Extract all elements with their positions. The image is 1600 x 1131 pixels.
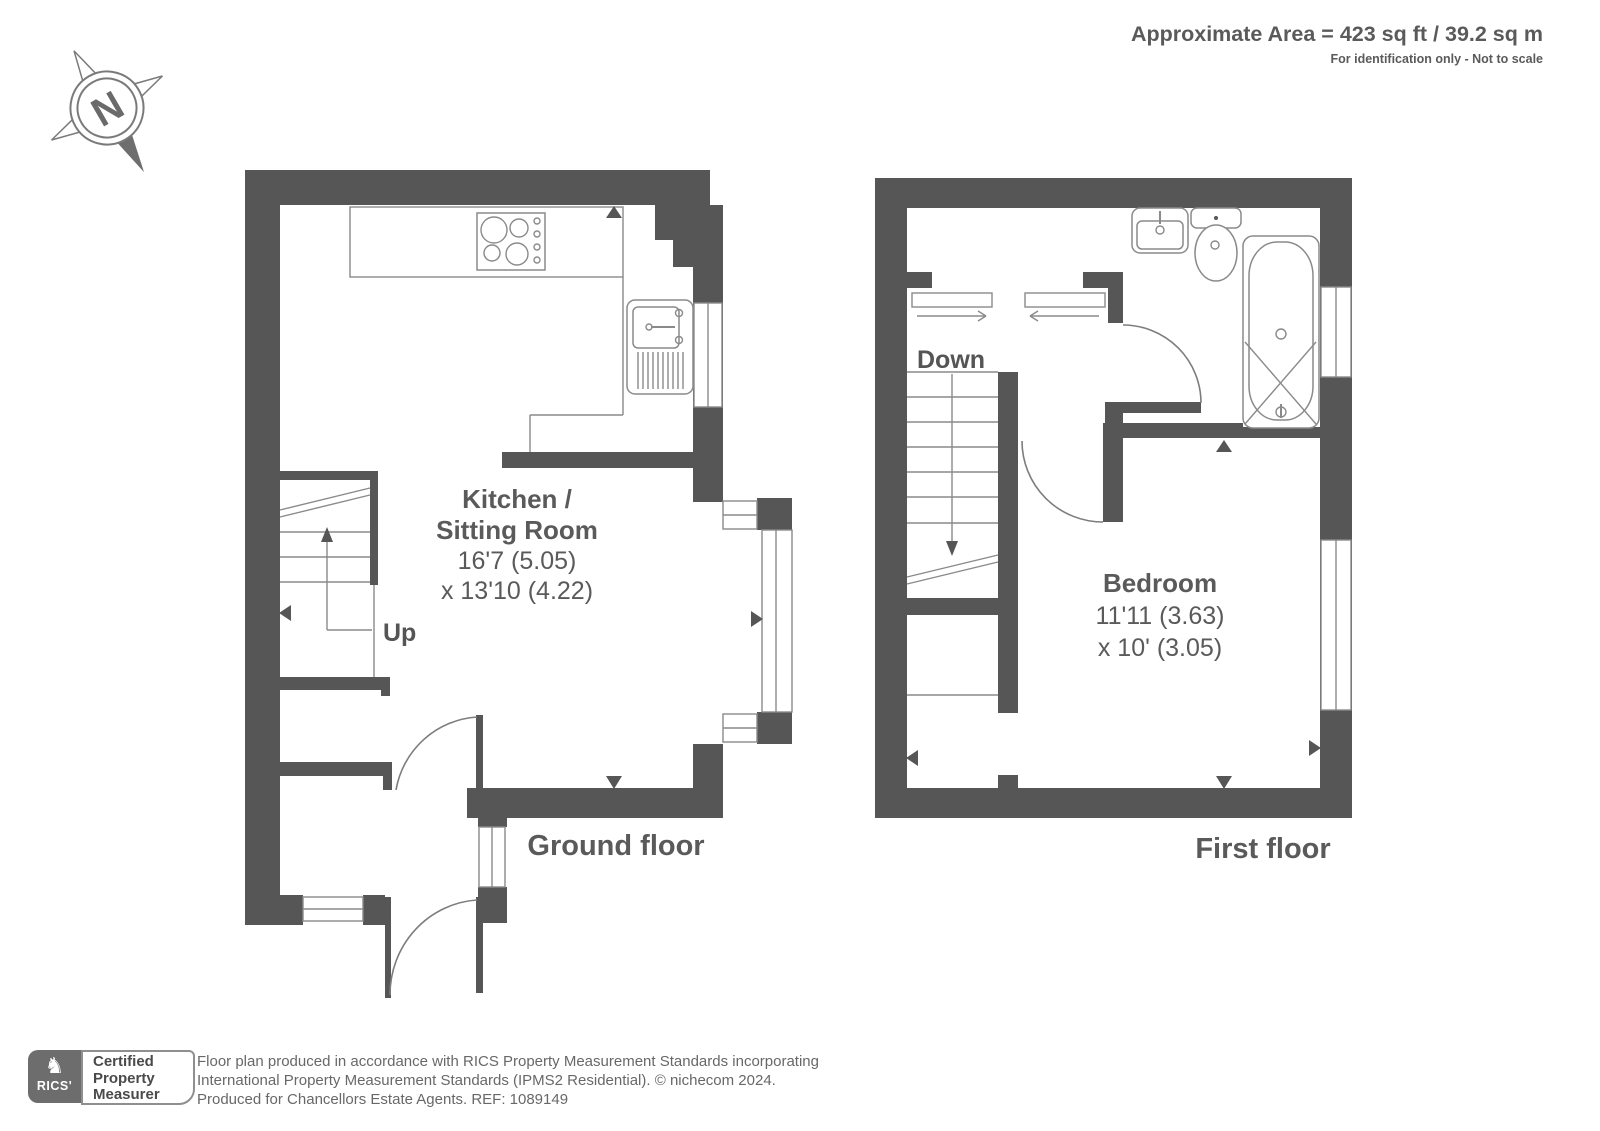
disclaimer-line: Floor plan produced in accordance with R… [197,1053,819,1072]
up-arrowhead [321,527,333,542]
first-floor-plan: Bedroom 11'11 (3.63) x 10' (3.05) Down F… [875,178,1352,865]
hob-icon [477,213,545,270]
marker-right-icon [1309,740,1321,756]
kitchen-door-leaf [476,715,483,807]
bathroom-door-leaf [1123,402,1201,413]
disclaimer-line: International Property Measurement Stand… [197,1072,819,1091]
marker-right-icon [751,611,763,627]
sliding-doors [912,293,1105,321]
first-floor-caption: First floor [1195,833,1330,865]
bay-window-main [762,530,792,712]
bay-window-side2 [723,714,757,742]
down-arrowhead [946,541,958,556]
bedroom-door-leaf [1103,438,1123,522]
marker-up-icon [1216,440,1232,452]
front-door-arc [390,900,477,995]
stairs-down [907,372,998,695]
ground-floor-caption: Ground floor [527,830,704,862]
ground-floor-windows [303,303,792,921]
badge-line: Measurer [93,1087,193,1104]
floor-plan-drawing: N [0,0,1600,1131]
stairs-up [280,488,374,677]
ground-room-name-line2: Sitting Room [436,515,598,545]
rics-logo-text: RICS' [28,1079,81,1093]
front-door-leaf [476,897,483,993]
marker-down-icon [1216,776,1232,789]
marker-up-icon [606,206,622,218]
bedroom-name: Bedroom [1103,568,1217,598]
disclaimer-line: Produced for Chancellors Estate Agents. … [197,1091,819,1110]
bathtub-icon [1243,236,1319,428]
kitchen-window [694,303,722,407]
badge-line: Property [93,1071,193,1088]
ground-room-dims-line1: 16'7 (5.05) [458,547,577,575]
porch-window-bottom [303,897,363,921]
disclaimer-text: Floor plan produced in accordance with R… [197,1053,819,1109]
ground-room-name-line1: Kitchen / [462,484,572,514]
kitchen-door-arc [396,717,477,790]
stairs-up-label: Up [383,619,416,647]
ground-room-dims-line2: x 13'10 (4.22) [441,577,593,605]
toilet-icon [1191,208,1241,281]
ground-floor-plan: Kitchen / Sitting Room 16'7 (5.05) x 13'… [245,170,792,998]
marker-left-icon [906,750,918,766]
bedroom-window [1321,540,1351,710]
rics-lion-icon: ♞ [28,1053,81,1079]
badge-line: Certified [93,1054,193,1071]
basin-icon [1132,208,1188,253]
bathroom-door-arc [1123,325,1201,403]
marker-left-icon [279,605,291,621]
bedroom-door-arc [1022,441,1103,522]
bay-window-side [723,501,757,529]
bedroom-dims-line1: 11'11 (3.63) [1096,602,1225,630]
porch-window-side [479,827,505,887]
stairs-down-label: Down [917,346,985,374]
sink-icon [627,300,693,394]
compass-icon: N [19,19,200,204]
certified-property-measurer-badge: Certified Property Measurer [81,1050,195,1105]
bedroom-dims-line2: x 10' (3.05) [1098,634,1222,662]
bathroom-window [1321,287,1351,377]
marker-down-icon [606,776,622,789]
rics-logo: ♞ RICS' [28,1050,81,1103]
